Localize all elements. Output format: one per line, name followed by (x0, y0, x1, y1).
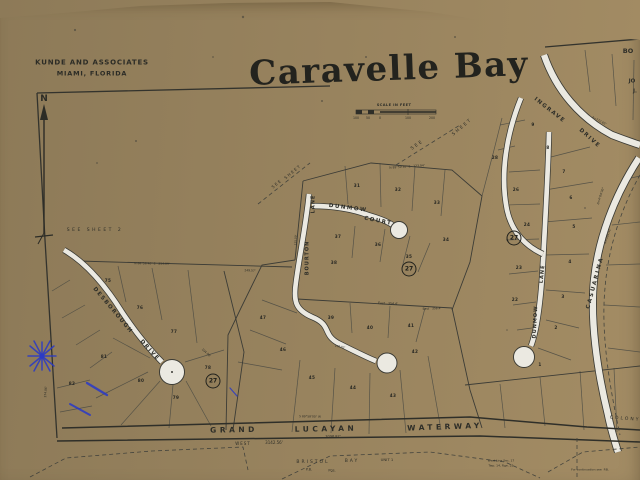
lot-number: 5 (572, 225, 575, 229)
map-label: WEST (235, 442, 250, 446)
lot-number: 38 (331, 261, 337, 265)
lot-number: 78 (205, 366, 211, 370)
surveyor-name: KUNDE AND ASSOCIATES (35, 59, 149, 67)
lot-number: 4 (568, 260, 571, 264)
lot-number: 23 (516, 266, 522, 270)
lot-number: 26 (513, 188, 519, 192)
scale-tick-label: 200 (429, 117, 435, 120)
map-label: LUCAYAN (295, 425, 358, 434)
surveyor-city: MIAMI, FLORIDA (35, 70, 149, 78)
map-label: LANE (312, 195, 317, 214)
lot-number: 42 (412, 350, 418, 354)
plat-paper: KUNDE AND ASSOCIATES MIAMI, FLORIDA Cara… (0, 0, 640, 480)
photo-backing: KUNDE AND ASSOCIATES MIAMI, FLORIDA Cara… (0, 0, 640, 480)
map-label: 125.00' (294, 235, 297, 246)
lot-number: 1 (538, 363, 541, 367)
map-label: 3096.87' (325, 435, 340, 439)
lot-number: 2 (554, 326, 557, 330)
lot-number: 22 (512, 298, 518, 302)
map-label: Twp. 14, Rge. 25 (489, 465, 514, 468)
map-label: 249.57' (244, 269, 255, 272)
scale-tick-label: 50 (366, 117, 370, 120)
map-label: S 89°58'00" W (299, 415, 321, 418)
block-boundaries (78, 163, 640, 430)
north-arrow (35, 104, 53, 244)
circled-27-badge: 27 (206, 374, 221, 389)
scale-tick-label: 100 (353, 117, 359, 120)
lot-number: 75 (105, 279, 111, 283)
map-label: GRAND (210, 426, 258, 434)
lot-number: 39 (328, 316, 334, 320)
lot-number: 36 (375, 243, 381, 247)
lot-number: 47 (260, 316, 266, 320)
lot-number: 45 (309, 376, 315, 380)
map-label: Pgs. (328, 469, 335, 473)
lot-number: 28 (492, 156, 498, 160)
lot-number: 35 (406, 255, 412, 259)
map-label: SEE SHEET 2 (67, 229, 123, 234)
lot-number: 82 (69, 382, 75, 386)
map-label: N 88°36'40" E 254.09' (134, 262, 169, 266)
scale-tick-label: 100 (405, 117, 411, 120)
circled-27-badge: 27 (507, 231, 522, 246)
scale-tick-label: 0 (379, 117, 381, 120)
lot-number: 24 (524, 223, 530, 227)
map-label: West Line Sec. 17 (488, 460, 515, 463)
lot-number: 34 (443, 238, 449, 242)
surveyor-credit: KUNDE AND ASSOCIATES MIAMI, FLORIDA (35, 59, 149, 78)
map-label: UNIT 1 (381, 458, 394, 462)
map-label: East 356.4' (423, 307, 442, 311)
lot-number: 80 (138, 379, 144, 383)
lot-number: 81 (101, 355, 107, 359)
map-label: East 354.4' (378, 302, 398, 306)
lot-number: 31 (354, 184, 360, 188)
cul-de-sacs (160, 222, 535, 385)
lot-number: 76 (137, 306, 143, 310)
lot-number: 6 (569, 196, 572, 200)
lot-number: 3 (561, 295, 564, 299)
lot-number: 41 (408, 324, 414, 328)
lot-lines-left-cluster (52, 266, 224, 428)
lot-number: 37 (335, 235, 341, 239)
lot-number: 7 (562, 170, 565, 174)
north-label: N (40, 94, 48, 104)
pen-stroke-1 (87, 383, 107, 395)
lot-number: 79 (173, 396, 179, 400)
map-label: BOURTON (306, 241, 311, 276)
map-label: 3142.56' (265, 441, 283, 445)
lot-number: 43 (390, 394, 396, 398)
map-label: For continuation see P.B. (571, 469, 609, 472)
lot-number: 8 (546, 146, 549, 150)
scale-bar: SCALE IN FEET 100500100200 (352, 102, 444, 124)
map-label: JO (629, 79, 636, 85)
map-label: BAY (345, 460, 360, 465)
map-label: J. (633, 90, 637, 95)
map-label: BO (623, 48, 633, 55)
scale-bar-graphic (352, 102, 444, 116)
map-label: P.B. (306, 468, 312, 472)
circled-27-badge: 27 (402, 262, 417, 277)
lot-number: 9 (531, 123, 534, 127)
map-label: BRISTOL (296, 461, 329, 466)
lot-number: 77 (171, 330, 177, 334)
lot-number: 33 (434, 201, 440, 205)
pen-stroke-3 (230, 388, 237, 396)
lot-number: 44 (350, 386, 356, 390)
lot-number: 32 (395, 188, 401, 192)
lot-number: 46 (280, 348, 286, 352)
lot-number: 40 (367, 326, 373, 330)
